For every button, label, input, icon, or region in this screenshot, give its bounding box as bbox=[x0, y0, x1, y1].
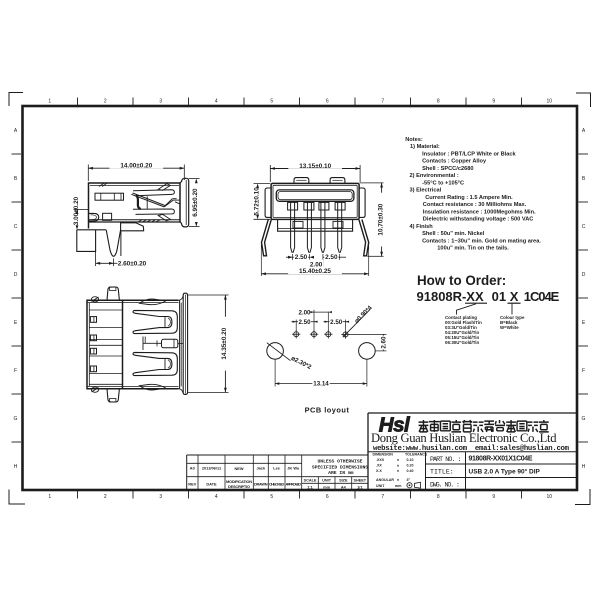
svg-text:DIMENSION: DIMENSION bbox=[373, 452, 394, 456]
svg-text:10: 10 bbox=[546, 99, 552, 105]
svg-text:6: 6 bbox=[326, 494, 329, 500]
svg-text:APPROVED: APPROVED bbox=[286, 481, 302, 486]
svg-text:1: 1 bbox=[48, 99, 51, 105]
svg-text:H: H bbox=[14, 464, 18, 470]
svg-text:2.00: 2.00 bbox=[298, 309, 311, 316]
svg-text:5: 5 bbox=[270, 99, 273, 105]
svg-text:H: H bbox=[582, 464, 586, 470]
svg-text:Jack: Jack bbox=[256, 465, 265, 470]
svg-text:Current Rating : 1.5 Ampere Mi: Current Rating : 1.5 Ampere Min. bbox=[425, 195, 513, 201]
svg-text:Shell : SPCC/c2680: Shell : SPCC/c2680 bbox=[422, 166, 473, 172]
svg-text:mm: mm bbox=[323, 485, 330, 489]
svg-text:DWG. NO. :: DWG. NO. : bbox=[430, 482, 460, 489]
svg-text:8: 8 bbox=[437, 99, 440, 105]
svg-text:Insulator : PBT/LCP White or B: Insulator : PBT/LCP White or Black bbox=[422, 151, 516, 157]
svg-text:2: 2 bbox=[104, 494, 107, 500]
svg-text:5: 5 bbox=[270, 494, 273, 500]
svg-text:C: C bbox=[582, 224, 586, 230]
svg-text:Dielectric withstanding voltag: Dielectric withstanding voltage : 500 VA… bbox=[423, 217, 534, 223]
svg-text:UNLESS OTHERWISE: UNLESS OTHERWISE bbox=[317, 459, 362, 465]
svg-text:06:30U"Gold/Tin: 06:30U"Gold/Tin bbox=[445, 340, 480, 345]
svg-text:-55°C to +105°C: -55°C to +105°C bbox=[422, 180, 464, 186]
svg-text:4) Finish: 4) Finish bbox=[410, 224, 434, 230]
svg-text:10.70±0.30: 10.70±0.30 bbox=[377, 203, 384, 235]
svg-text:±: ± bbox=[397, 478, 399, 482]
svg-text:SCALE: SCALE bbox=[304, 479, 317, 483]
svg-text:2.50: 2.50 bbox=[325, 254, 338, 261]
svg-text:7: 7 bbox=[381, 99, 384, 105]
svg-text:W=White: W=White bbox=[500, 325, 519, 330]
svg-text:.XXX: .XXX bbox=[376, 458, 385, 462]
svg-text:2: 2 bbox=[104, 99, 107, 105]
svg-text:DESCRIPTIO: DESCRIPTIO bbox=[228, 484, 250, 489]
svg-text:REV: REV bbox=[188, 481, 196, 486]
svg-text:91808R-XX01X1C04E: 91808R-XX01X1C04E bbox=[469, 456, 533, 463]
svg-text:2.60±0.20: 2.60±0.20 bbox=[118, 261, 147, 268]
svg-text:1:1: 1:1 bbox=[307, 485, 313, 489]
svg-text:6.95±0.20: 6.95±0.20 bbox=[192, 188, 199, 217]
svg-text:Contact resistance : 30 Millio: Contact resistance : 30 Milliohms Max. bbox=[423, 202, 527, 208]
svg-text:3: 3 bbox=[159, 494, 162, 500]
svg-text:3°: 3° bbox=[407, 478, 411, 482]
svg-text:9: 9 bbox=[492, 99, 495, 105]
svg-text:100u" min. Tin on the tails.: 100u" min. Tin on the tails. bbox=[437, 246, 509, 252]
svg-text:±: ± bbox=[397, 469, 399, 473]
svg-text:2.60: 2.60 bbox=[380, 336, 387, 349]
svg-text:F: F bbox=[582, 368, 585, 374]
svg-text:13.15±0.10: 13.15±0.10 bbox=[299, 163, 331, 170]
svg-text:2013/06/11: 2013/06/11 bbox=[202, 465, 222, 470]
svg-text:Notes:: Notes: bbox=[405, 137, 423, 143]
svg-text:How to Order:: How to Order: bbox=[417, 273, 506, 288]
svg-text:14.35±0.20: 14.35±0.20 bbox=[221, 327, 228, 359]
svg-text:0.20: 0.20 bbox=[407, 463, 414, 467]
svg-text:Contacts : Copper Alloy: Contacts : Copper Alloy bbox=[422, 159, 487, 165]
svg-text:.XX: .XX bbox=[376, 463, 382, 467]
svg-text:Insulation resistance : 1000Me: Insulation resistance : 1000Megohms Min. bbox=[423, 209, 536, 215]
svg-text:2.50: 2.50 bbox=[298, 319, 311, 326]
svg-text:CHECKED: CHECKED bbox=[269, 481, 284, 486]
svg-text:SHEET: SHEET bbox=[353, 479, 366, 483]
svg-text:±: ± bbox=[397, 458, 399, 462]
svg-text:ANGULAR: ANGULAR bbox=[376, 478, 394, 482]
svg-text:3.00±0.20: 3.00±0.20 bbox=[73, 196, 80, 225]
svg-text:8: 8 bbox=[437, 494, 440, 500]
svg-text:0.40: 0.40 bbox=[407, 469, 414, 473]
svg-text:UNIT: UNIT bbox=[322, 479, 332, 483]
svg-text:C: C bbox=[14, 224, 18, 230]
svg-text:6: 6 bbox=[326, 99, 329, 105]
svg-text:10: 10 bbox=[546, 494, 552, 500]
svg-text:0.10: 0.10 bbox=[407, 458, 414, 462]
svg-text:TITLE:: TITLE: bbox=[430, 469, 454, 476]
svg-text:2.50: 2.50 bbox=[295, 254, 308, 261]
svg-text:Lee: Lee bbox=[273, 465, 281, 470]
svg-text:±: ± bbox=[397, 463, 399, 467]
svg-text:3: 3 bbox=[159, 99, 162, 105]
svg-text:G: G bbox=[582, 416, 586, 422]
svg-text:Shell : 50u" min. Nickel: Shell : 50u" min. Nickel bbox=[422, 231, 485, 237]
svg-text:Contacts : 1~30u" min. Gold on: Contacts : 1~30u" min. Gold on mating ar… bbox=[422, 238, 541, 244]
svg-text:SIZE: SIZE bbox=[339, 479, 348, 483]
svg-text:mm: mm bbox=[395, 484, 401, 488]
svg-text:X.X: X.X bbox=[376, 469, 382, 473]
svg-text:4: 4 bbox=[215, 99, 218, 105]
svg-text:DRAWN: DRAWN bbox=[254, 481, 268, 486]
svg-text:PCB loyout: PCB loyout bbox=[305, 406, 350, 415]
svg-text:1) Material:: 1) Material: bbox=[410, 144, 440, 150]
svg-text:7: 7 bbox=[381, 494, 384, 500]
svg-text:PART NO. :: PART NO. : bbox=[430, 456, 462, 463]
svg-text:DATE: DATE bbox=[206, 481, 217, 486]
svg-text:Dong Guan Huslian Electronic C: Dong Guan Huslian Electronic Co.,Ltd bbox=[371, 431, 557, 445]
svg-text:2.50: 2.50 bbox=[330, 319, 343, 326]
svg-text:UNIT: UNIT bbox=[376, 484, 385, 488]
svg-text:A0: A0 bbox=[190, 465, 195, 470]
svg-text:D: D bbox=[582, 272, 586, 278]
svg-text:JK Wu: JK Wu bbox=[287, 465, 300, 470]
svg-text:G: G bbox=[14, 416, 18, 422]
svg-text:2) Environmental :: 2) Environmental : bbox=[410, 173, 459, 179]
svg-text:1: 1 bbox=[48, 494, 51, 500]
svg-text:15.40±0.25: 15.40±0.25 bbox=[299, 268, 331, 275]
svg-text:F: F bbox=[14, 368, 17, 374]
svg-text:TOLERANCE: TOLERANCE bbox=[405, 452, 428, 456]
svg-text:3) Electrical: 3) Electrical bbox=[410, 188, 442, 194]
svg-text:SPECIFIED DIMENSIONS: SPECIFIED DIMENSIONS bbox=[312, 464, 368, 470]
svg-text:5.72±0.10: 5.72±0.10 bbox=[253, 187, 260, 216]
svg-text:9: 9 bbox=[492, 494, 495, 500]
svg-text:ARE IN mm: ARE IN mm bbox=[328, 470, 354, 476]
svg-text:13.14: 13.14 bbox=[313, 381, 329, 388]
svg-text:4: 4 bbox=[215, 494, 218, 500]
svg-text:14.00±0.20: 14.00±0.20 bbox=[120, 163, 152, 170]
svg-text:D: D bbox=[14, 272, 18, 278]
svg-text:1/1: 1/1 bbox=[357, 485, 362, 489]
svg-text:USB 2.0 A Type 90° DIP: USB 2.0 A Type 90° DIP bbox=[469, 467, 541, 475]
svg-text:NEW: NEW bbox=[234, 466, 243, 471]
